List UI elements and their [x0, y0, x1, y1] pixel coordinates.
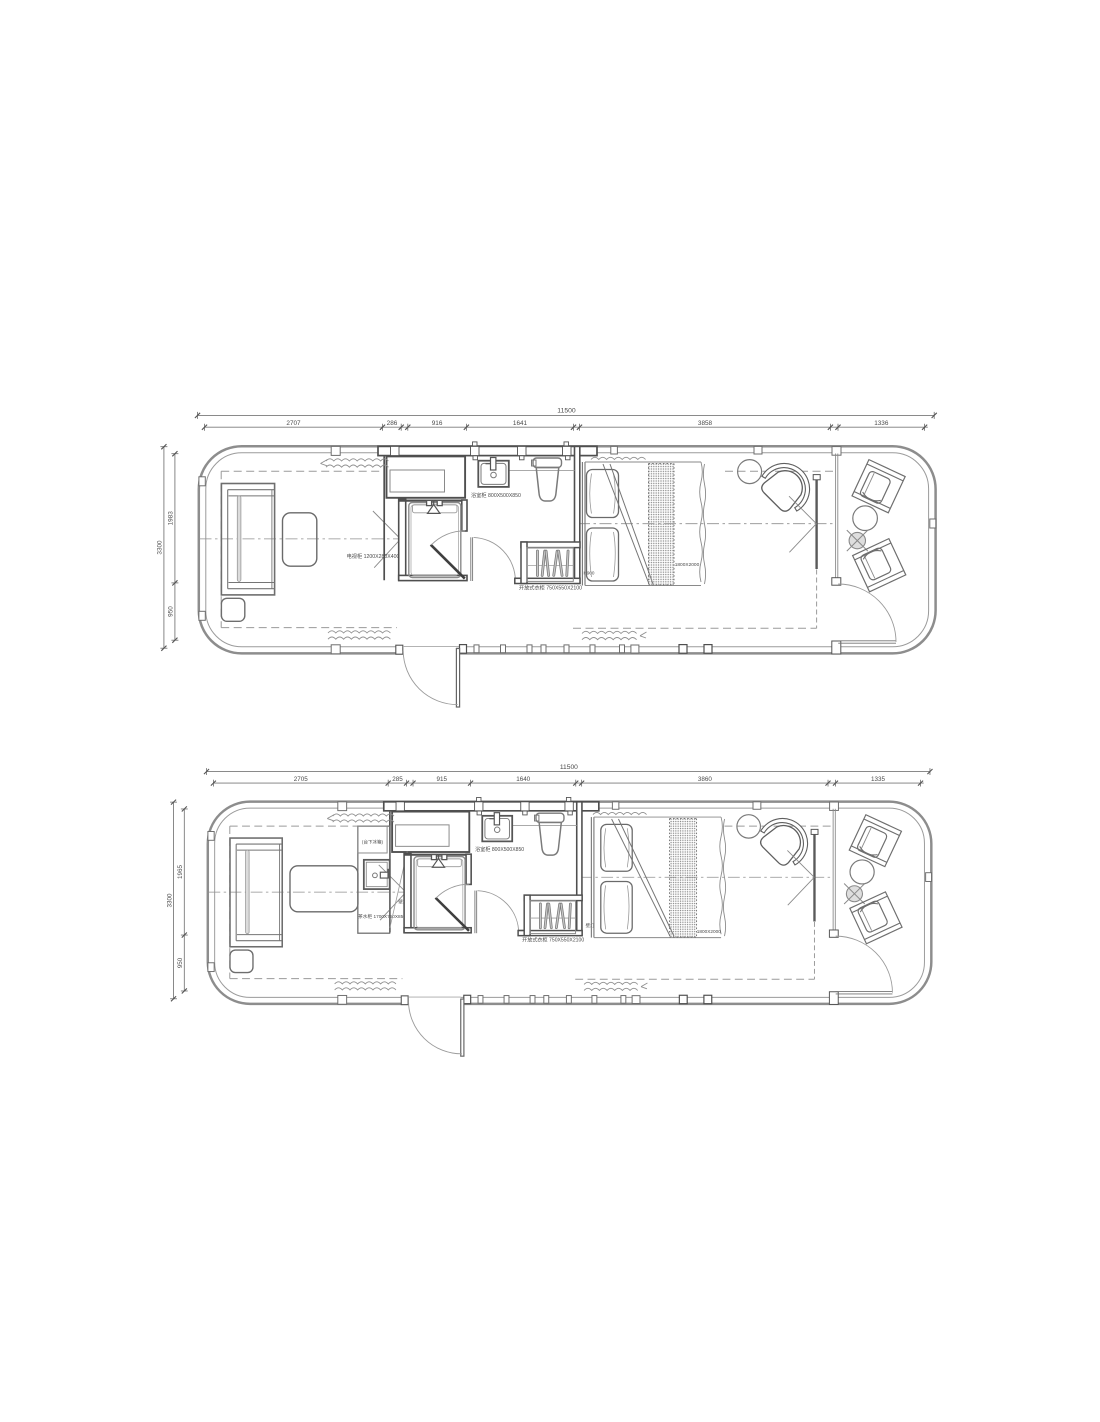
svg-text:1336: 1336	[874, 420, 889, 427]
svg-text:285: 285	[392, 776, 403, 783]
svg-text:1800X2000: 1800X2000	[675, 562, 700, 568]
svg-text:茶水柜 1700X750X850: 茶水柜 1700X750X850	[358, 913, 406, 920]
svg-text:11500: 11500	[557, 408, 576, 415]
svg-text:3858: 3858	[698, 420, 713, 427]
svg-text:915: 915	[437, 776, 448, 783]
svg-text:950: 950	[168, 606, 175, 617]
svg-text:2707: 2707	[286, 420, 301, 427]
svg-text:1335: 1335	[871, 776, 885, 783]
svg-text:浴室柜 800X500X850: 浴室柜 800X500X850	[475, 846, 524, 853]
svg-text:电视柜 1200X280X400: 电视柜 1200X280X400	[347, 552, 400, 560]
svg-text:1800X2000: 1800X2000	[697, 929, 721, 934]
svg-text:(台下冰箱): (台下冰箱)	[362, 838, 384, 845]
svg-text:3300: 3300	[166, 893, 173, 907]
svg-text:3300: 3300	[157, 540, 164, 555]
svg-text:916: 916	[432, 420, 443, 427]
svg-text:浴室柜 800X500X850: 浴室柜 800X500X850	[471, 491, 521, 499]
svg-text:286: 286	[387, 420, 398, 427]
svg-text:1640: 1640	[516, 776, 530, 783]
svg-text:开放式衣柜 750X550X2100: 开放式衣柜 750X550X2100	[519, 583, 582, 591]
svg-text:1965: 1965	[177, 865, 184, 879]
svg-text:3860: 3860	[698, 776, 712, 783]
svg-text:开放式衣柜 750X550X2100: 开放式衣柜 750X550X2100	[522, 936, 584, 943]
svg-text:2705: 2705	[294, 776, 308, 783]
svg-text:1983: 1983	[168, 511, 175, 526]
svg-text:1641: 1641	[513, 420, 528, 427]
svg-text:11500: 11500	[560, 764, 578, 771]
svg-text:950: 950	[177, 957, 184, 968]
